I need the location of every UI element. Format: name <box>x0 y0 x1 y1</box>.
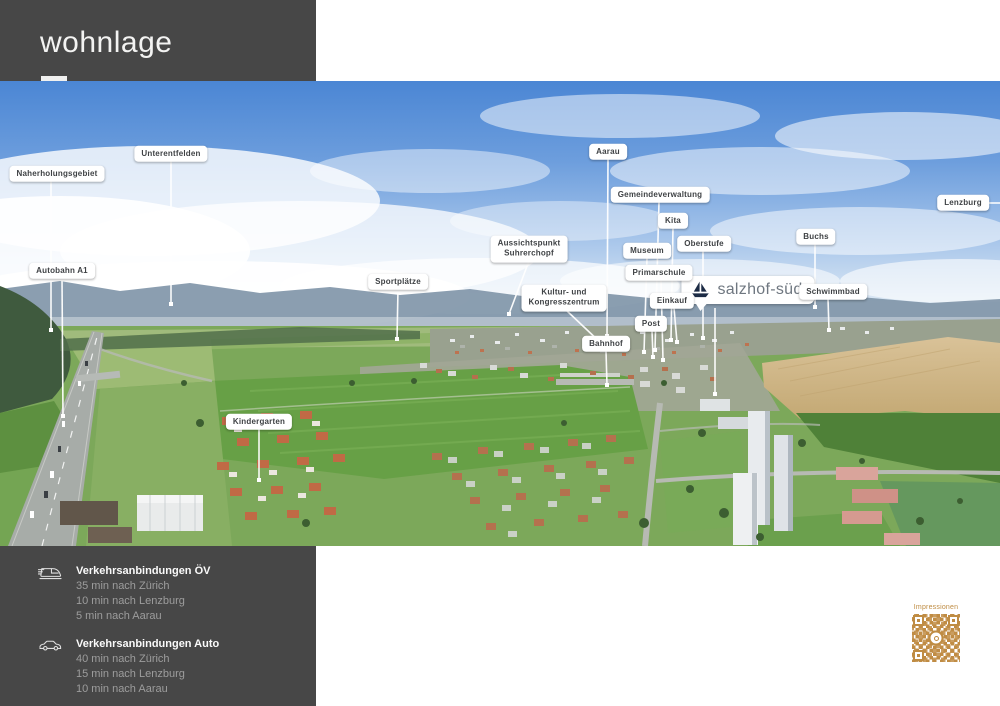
map-label-buchs: Buchs <box>796 229 835 245</box>
transit-title-auto: Verkehrsanbindungen Auto <box>76 637 219 652</box>
brand-label: salzhof-süd <box>717 282 802 298</box>
brand-pill-tail <box>695 303 707 311</box>
train-icon <box>38 564 63 585</box>
map-label-oberstufe: Oberstufe <box>677 236 731 252</box>
map-label-einkauf: Einkauf <box>650 293 694 309</box>
aerial-photo: salzhof-süd NaherholungsgebietUnterentfe… <box>0 81 1000 546</box>
qr-finder-icon <box>948 615 959 626</box>
map-label-kultur-und-kongresszentrum: Kultur- und Kongresszentrum <box>521 285 606 312</box>
map-label-lenzburg: Lenzburg <box>937 195 989 211</box>
transit-line: 35 min nach Zürich <box>76 579 210 594</box>
qr-finder-icon <box>913 650 924 661</box>
map-label-aarau: Aarau <box>589 144 627 160</box>
map-label-primarschule: Primarschule <box>625 265 692 281</box>
qr-label: Impressionen <box>906 604 966 611</box>
transit-line: 5 min nach Aarau <box>76 609 210 624</box>
transit-line: 15 min nach Lenzburg <box>76 667 219 682</box>
brand-pill-salzhof-sued: salzhof-süd <box>681 276 814 304</box>
qr-block: Impressionen <box>906 604 966 662</box>
footer-bar: Verkehrsanbindungen ÖV 35 min nach Züric… <box>0 546 316 706</box>
map-label-gemeindeverwaltung: Gemeindeverwaltung <box>611 187 710 203</box>
map-label-autobahn-a1: Autobahn A1 <box>29 263 95 279</box>
map-label-kita: Kita <box>658 213 688 229</box>
transit-line: 10 min nach Lenzburg <box>76 594 210 609</box>
map-label-bahnhof: Bahnhof <box>582 336 630 352</box>
map-label-naherholungsgebiet: Naherholungsgebiet <box>10 166 105 182</box>
transit-title-oev: Verkehrsanbindungen ÖV <box>76 564 210 579</box>
map-label-kindergarten: Kindergarten <box>226 414 292 430</box>
map-label-schwimmbad: Schwimmbad <box>799 284 867 300</box>
transit-line: 10 min nach Aarau <box>76 682 219 697</box>
map-label-unterentfelden: Unterentfelden <box>134 146 207 162</box>
transit-line: 40 min nach Zürich <box>76 652 219 667</box>
header-bar: wohnlage <box>0 0 316 81</box>
map-label-museum: Museum <box>623 243 671 259</box>
callout-labels: salzhof-süd NaherholungsgebietUnterentfe… <box>0 81 1000 546</box>
transit-lines-oev: 35 min nach Zürich10 min nach Lenzburg5 … <box>76 579 210 624</box>
qr-finder-icon <box>913 615 924 626</box>
page-title: wohnlage <box>40 26 172 60</box>
map-label-post: Post <box>635 316 667 332</box>
transit-section-auto: Verkehrsanbindungen Auto 40 min nach Zür… <box>38 624 316 697</box>
qr-code <box>912 614 960 662</box>
transit-section-oev: Verkehrsanbindungen ÖV 35 min nach Züric… <box>38 546 316 624</box>
car-icon <box>38 637 63 656</box>
qr-center-logo-icon <box>929 631 944 646</box>
transit-lines-auto: 40 min nach Zürich15 min nach Lenzburg10… <box>76 652 219 697</box>
map-label-sportpl-tze: Sportplätze <box>368 274 428 290</box>
map-label-aussichtspunkt-suhrerchopf: Aussichtspunkt Suhrerchopf <box>491 236 568 263</box>
